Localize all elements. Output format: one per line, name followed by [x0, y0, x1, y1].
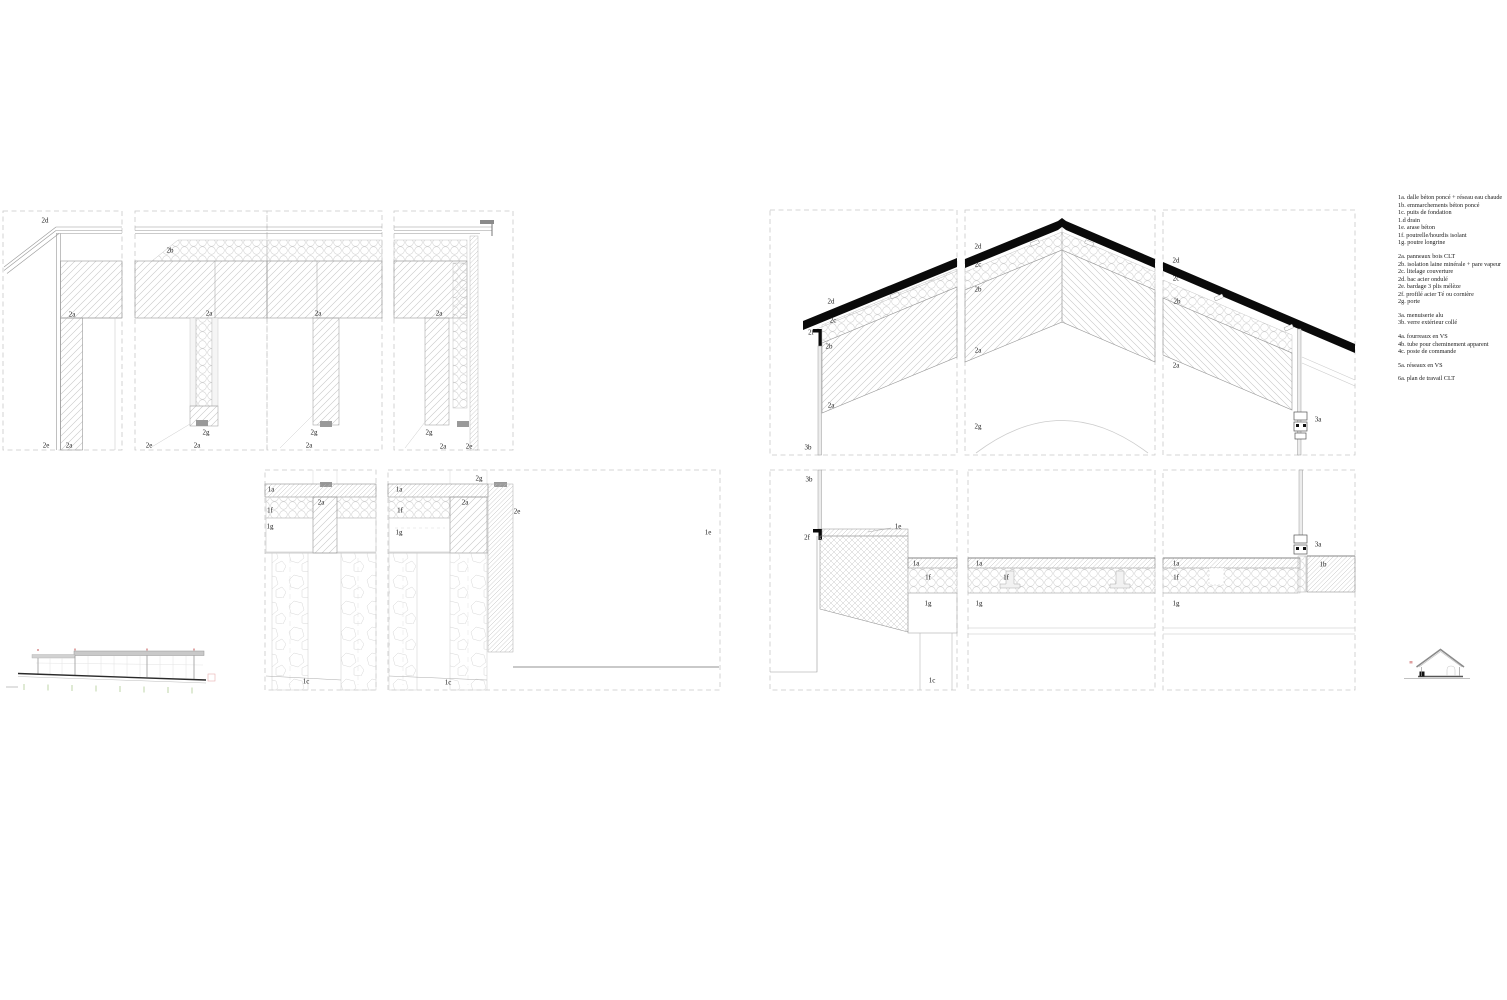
foundation-pile [450, 553, 487, 690]
detail-label: 2g [975, 424, 982, 431]
survey-markers-green [24, 684, 192, 694]
detail-label: 1a [1173, 561, 1180, 568]
detail-label: 2f [804, 535, 810, 542]
house-section-icon [1404, 650, 1470, 679]
clt-post [313, 318, 339, 425]
legend-item: 4b. tube pour cheminement apparent [1398, 341, 1507, 349]
structural-glazing [818, 346, 822, 455]
panel-floor-midspan [968, 558, 1155, 634]
legend-item: 1.d drain [1398, 217, 1507, 225]
panel-door-head [135, 227, 267, 448]
door-track-marker [320, 421, 332, 427]
detail-label: 3a [1315, 417, 1322, 424]
detail-label: 1f [1173, 575, 1179, 582]
roof-band-low [32, 655, 75, 659]
concrete-slab [1163, 558, 1300, 568]
door-arc [976, 421, 1148, 454]
detail-label: 1g [925, 601, 932, 608]
detail-label: 1a [268, 487, 275, 494]
detail-label: 2a [69, 312, 76, 319]
ground-beam [908, 593, 957, 633]
detail-label: 2g [476, 476, 483, 483]
detail-label: 1g [976, 601, 983, 608]
concrete-steps [1307, 556, 1355, 592]
detail-label: 2a [306, 443, 313, 450]
legend-item: 1e. arase béton [1398, 224, 1507, 232]
detail-label: 1c [445, 680, 452, 687]
roof-section-panels [770, 210, 1355, 455]
detail-label: 1g [1173, 601, 1180, 608]
insulated-upstand [1298, 556, 1306, 592]
legend-item: 1f. poutrelle/hourdis isolant [1398, 232, 1507, 240]
detail-label: 1g [396, 530, 403, 537]
detail-label: 2g [426, 430, 433, 437]
detail-label: 2a [436, 311, 443, 318]
detail-label: 2b [1174, 299, 1181, 306]
larch-cladding [470, 236, 478, 450]
legend-item: 2b. isolation laine minérale + pare vape… [1398, 261, 1507, 269]
detail-label: 2a [462, 500, 469, 507]
fixing-clip [1214, 294, 1224, 301]
floor-slab-detail-panels [770, 470, 1355, 690]
legend-group: 6a. plan de travail CLT [1398, 375, 1507, 383]
fixing-clip [1284, 324, 1294, 331]
legend-item: 5a. réseaux en VS [1398, 362, 1507, 370]
alu-frame-detail [1294, 535, 1307, 554]
concrete-slab [265, 484, 376, 497]
flashing-cap [480, 220, 494, 224]
legend: 1a. dalle béton poncé + réseau eau chaud… [1398, 194, 1507, 389]
roof-outline [1417, 650, 1465, 668]
insulated-joist-layer [968, 568, 1155, 593]
panel-ridge [965, 218, 1155, 453]
detail-label: 2a [975, 348, 982, 355]
legend-item: 1c. puits de fondation [1398, 209, 1507, 217]
legend-item: 2g. porte [1398, 298, 1507, 306]
detail-label: 1a [396, 487, 403, 494]
legend-item: 2f. profilé acier Té ou cornière [1398, 291, 1507, 299]
detail-label: 1c [303, 679, 310, 686]
concrete-slab [388, 484, 488, 497]
survey-markers-red [37, 649, 195, 652]
detail-label: 2a [66, 443, 73, 450]
legend-group: 4a. fourreaux en VS4b. tube pour chemine… [1398, 333, 1507, 356]
key-elevation [6, 649, 215, 694]
detail-label: 3b [805, 445, 812, 452]
legend-item: 2a. panneaux bois CLT [1398, 253, 1507, 261]
detail-label: 1a [913, 561, 920, 568]
insulated-joist-layer [1163, 568, 1300, 593]
clt-slab [135, 261, 267, 318]
panel-slope-mullion [1163, 262, 1355, 455]
detail-label: 2d [42, 218, 49, 225]
legend-item: 1a. dalle béton poncé + réseau eau chaud… [1398, 194, 1507, 202]
detail-label: 2d [1173, 258, 1180, 265]
legend-item: 4c. poste de commande [1398, 348, 1507, 356]
legend-group: 3a. menuiserie alu3b. verre extérieur co… [1398, 312, 1507, 327]
door-track-marker [196, 420, 208, 426]
detail-label: 2f [808, 330, 814, 337]
legend-group: 5a. réseaux en VS [1398, 362, 1507, 370]
detail-label: 2e [514, 509, 521, 516]
clt-slab [61, 261, 123, 318]
legend-group: 1a. dalle béton poncé + réseau eau chaud… [1398, 194, 1507, 247]
detail-label: 2d [828, 299, 835, 306]
detail-label: 2a [828, 403, 835, 410]
panel-interior-post [267, 227, 382, 448]
detail-label: 1g [267, 524, 274, 531]
legend-item: 2c. litelage couverture [1398, 268, 1507, 276]
detail-label: 3a [1315, 542, 1322, 549]
detail-label: 2c [975, 262, 982, 269]
wall-detail-panels [3, 211, 513, 450]
detail-label: 2a [194, 443, 201, 450]
drawing-canvas [0, 0, 1507, 1000]
legend-item: 2d. bac acier ondulé [1398, 276, 1507, 284]
panel-eave [803, 258, 957, 455]
legend-item: 4a. fourreaux en VS [1398, 333, 1507, 341]
insulated-jamb [453, 263, 467, 408]
detail-label: 2e [466, 444, 473, 451]
door-track-marker [457, 421, 469, 427]
detail-label: 1f [397, 508, 403, 515]
legend-item: 6a. plan de travail CLT [1398, 375, 1507, 383]
panel-threshold [1163, 470, 1355, 634]
detail-label: 2e [43, 443, 50, 450]
detail-label: 3b [806, 477, 813, 484]
detail-label: 2b [167, 248, 174, 255]
detail-label: 2b [826, 344, 833, 351]
detail-label: 1b [1320, 562, 1327, 569]
legend-item: 1b. emmarchements béton poncé [1398, 202, 1507, 210]
panel-clad-corner [394, 220, 494, 450]
clt-wall [61, 318, 83, 450]
detail-sheet: 2d2a2e2a2b2a2g2e2a2a2g2a2a2g2a2e1a2a1f1g… [0, 0, 1507, 1000]
foundation-pile [341, 553, 376, 690]
survey-marker-red [1410, 661, 1413, 664]
datum-box [208, 674, 215, 681]
legend-item: 3b. verre extérieur collé [1398, 319, 1507, 327]
concrete-upstand [820, 536, 908, 632]
detail-label: 2a [318, 500, 325, 507]
detail-label: 2g [203, 430, 210, 437]
excavation-line [770, 536, 817, 672]
structural-glazing [818, 470, 822, 529]
alu-mullion-detail [1294, 412, 1307, 439]
legend-item: 1g. poutre longrine [1398, 239, 1507, 247]
legend-item: 2e. bardage 3 plis mélèze [1398, 283, 1507, 291]
detail-label: 2a [206, 311, 213, 318]
panel-slab-pile-B [388, 470, 719, 690]
detail-label: 2a [440, 444, 447, 451]
panel-verge-detail [4, 227, 122, 450]
clt-post [313, 497, 337, 553]
door-arc [1447, 666, 1455, 676]
detail-label: 2g [311, 430, 318, 437]
detail-label: 2a [1173, 363, 1180, 370]
foundation-detail-panels [265, 470, 720, 690]
larch-cladding [488, 484, 513, 652]
roof-band [74, 651, 204, 656]
legend-item: 3a. menuiserie alu [1398, 312, 1507, 320]
section-marker [1420, 672, 1425, 677]
detail-label: 1c [929, 678, 936, 685]
detail-label: 1f [925, 575, 931, 582]
insulated-post [196, 318, 212, 406]
detail-label: 1e [705, 530, 712, 537]
detail-label: 2c [830, 318, 837, 325]
detail-label: 1f [267, 508, 273, 515]
concrete-slab [968, 558, 1155, 568]
structural-glazing [1299, 470, 1303, 535]
detail-label: 1e [895, 524, 902, 531]
detail-label: 2b [975, 287, 982, 294]
detail-label: 2c [1173, 276, 1180, 283]
detail-label: 1a [976, 561, 983, 568]
steel-angle [813, 329, 822, 346]
insulated-joist-layer [908, 568, 957, 593]
detail-label: 2a [315, 311, 322, 318]
detail-label: 2e [146, 443, 153, 450]
legend-group: 2a. panneaux bois CLT2b. isolation laine… [1398, 253, 1507, 306]
detail-label: 1f [1003, 575, 1009, 582]
base-line [18, 674, 206, 681]
detail-label: 2d [975, 244, 982, 251]
